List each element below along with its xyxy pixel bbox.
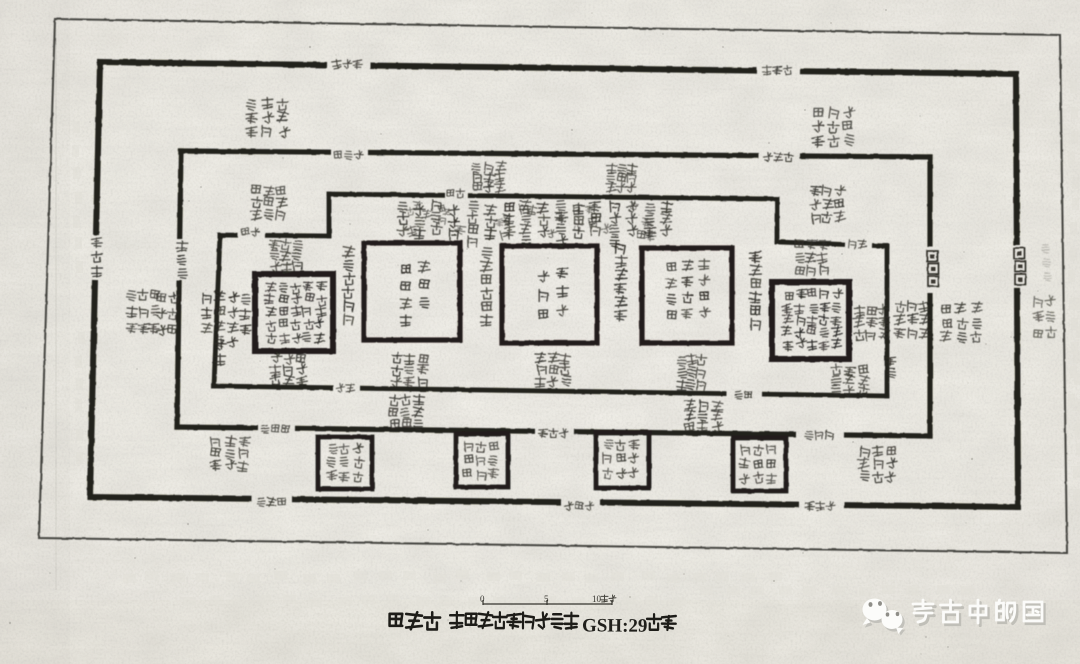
svg-text:5: 5 [544,594,549,604]
svg-text:10: 10 [592,594,602,604]
svg-text:0: 0 [480,594,485,604]
svg-text:GSH:29: GSH:29 [582,615,648,636]
